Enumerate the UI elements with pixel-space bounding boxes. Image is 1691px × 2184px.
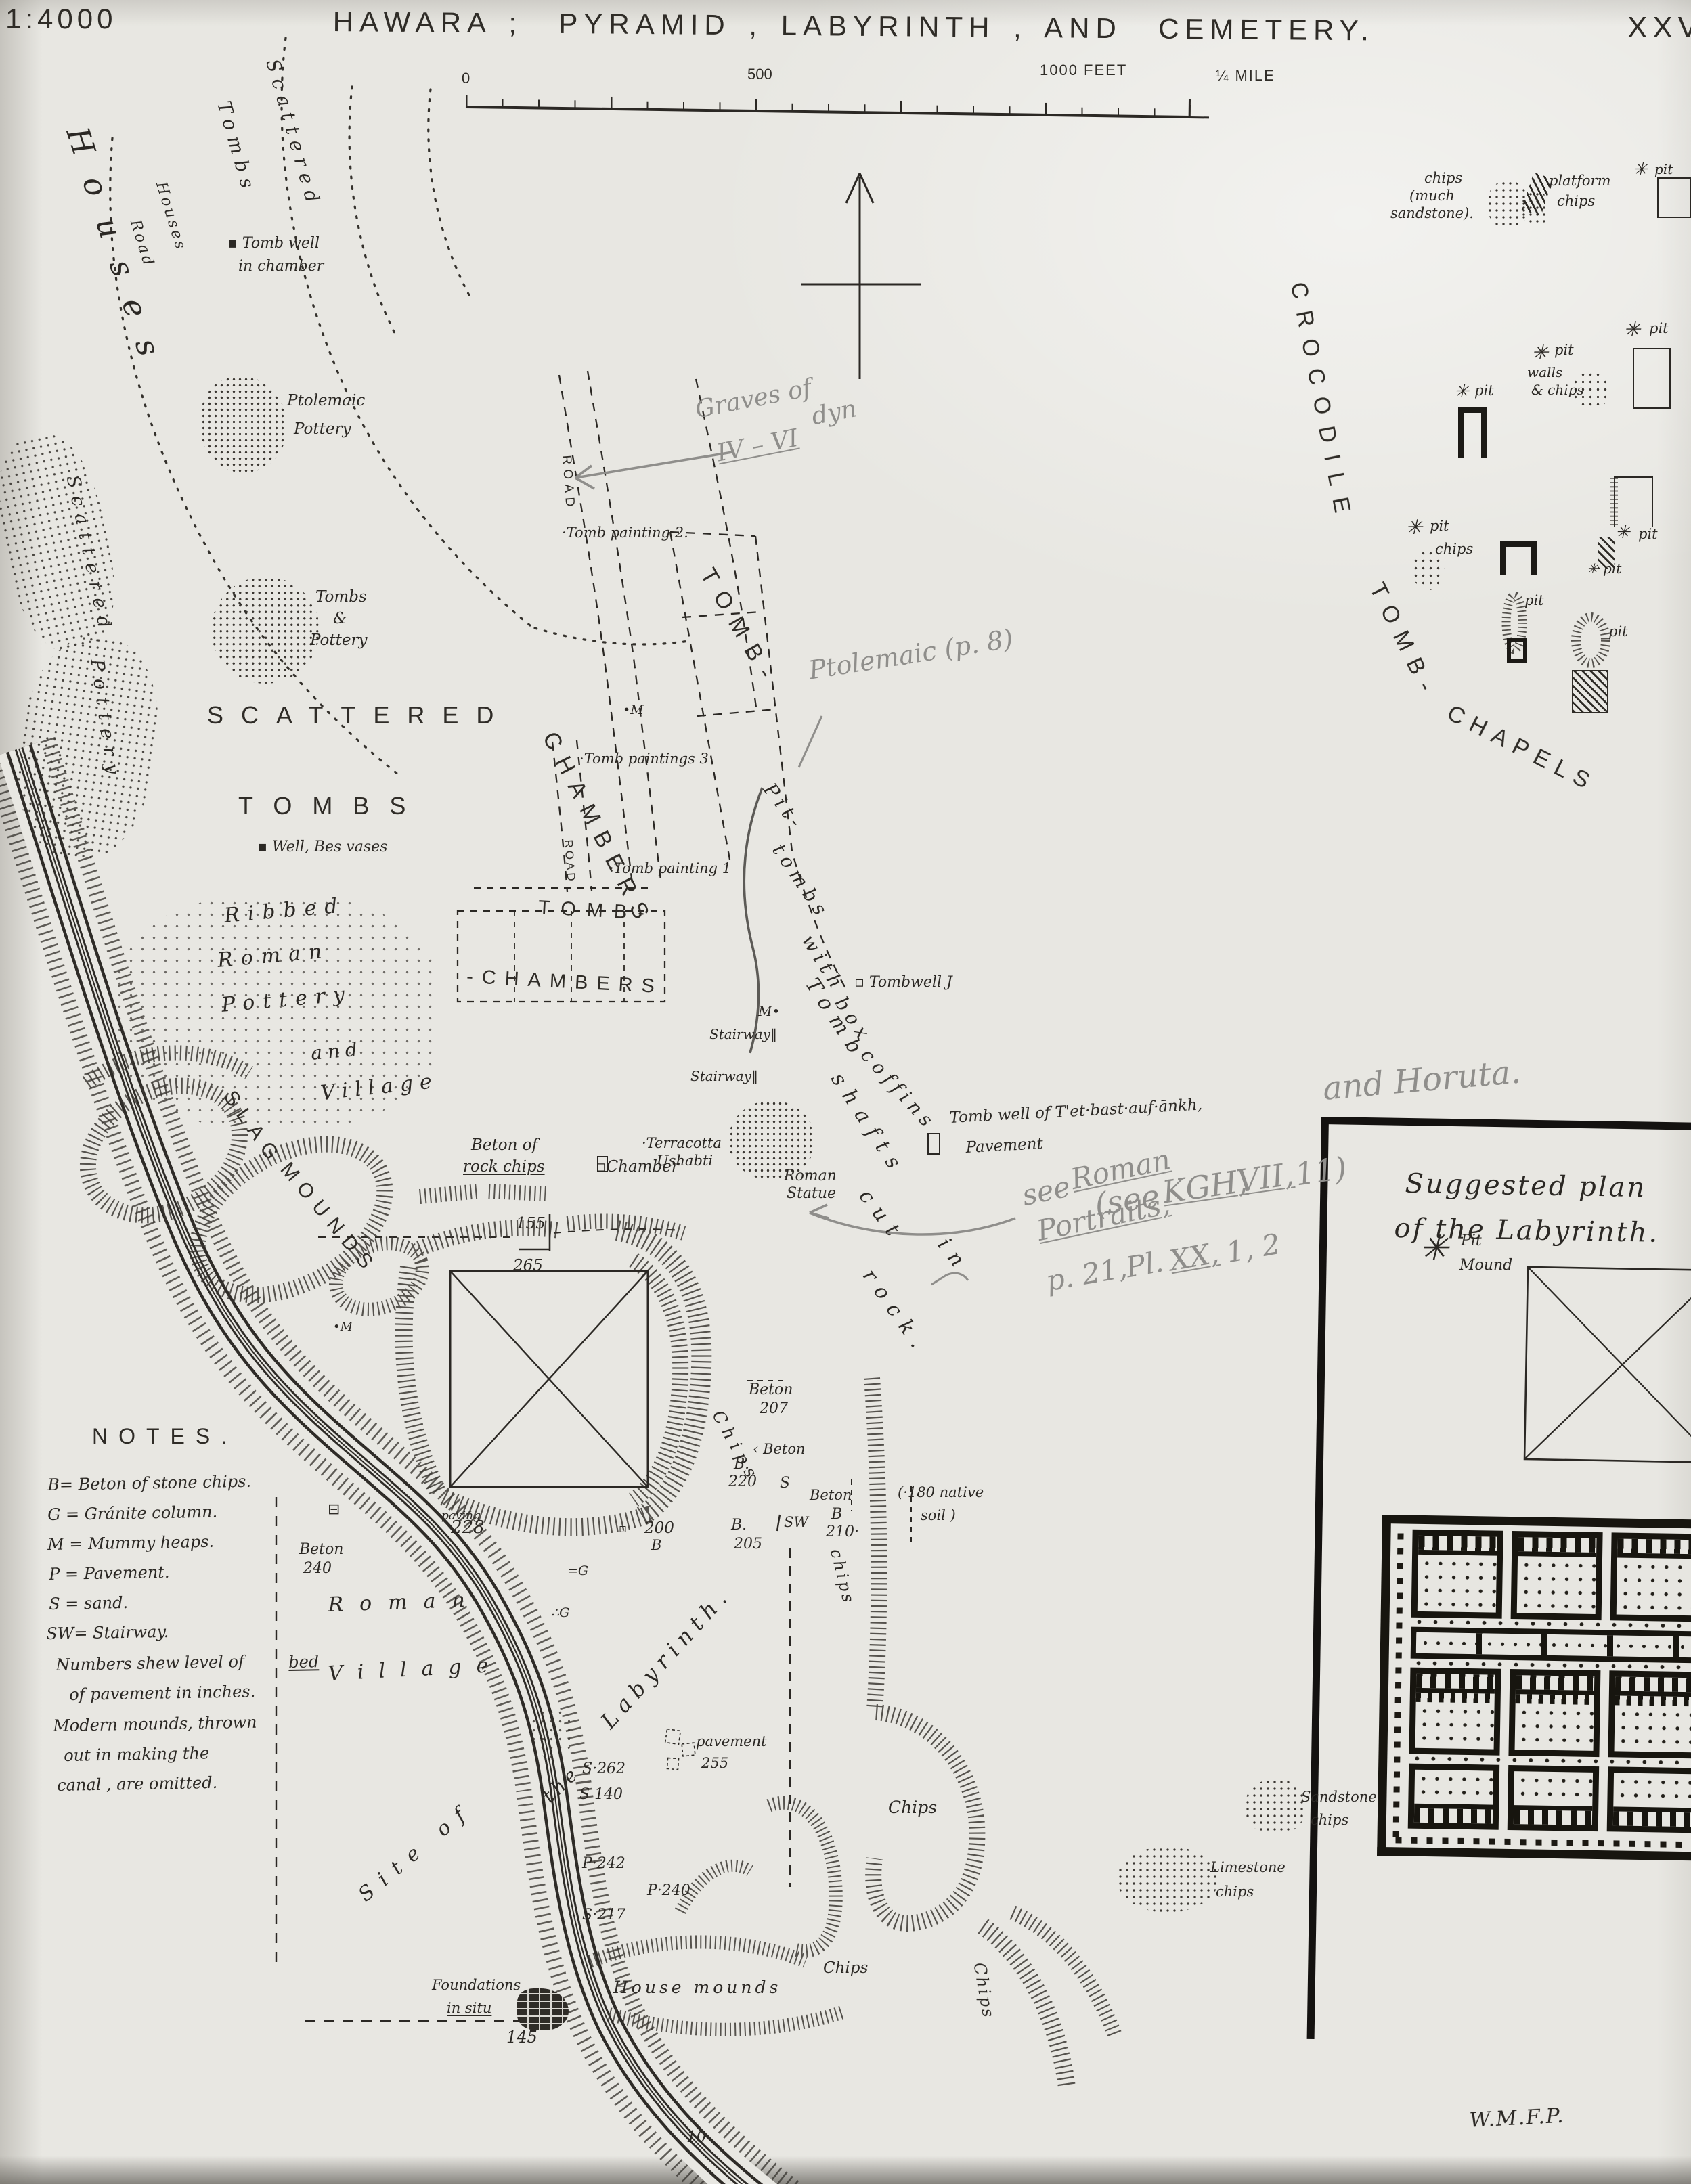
pit-star-icon-7: ✳ xyxy=(1587,562,1598,576)
marker-s: S xyxy=(780,1475,790,1491)
label-beton-207a: Beton xyxy=(749,1382,793,1398)
scale-bar-end-foot xyxy=(1189,116,1209,118)
inset-title-2: of the Labyrinth. xyxy=(1394,1214,1659,1247)
scalebar-quartermile: ¼ MILE xyxy=(1216,68,1275,83)
level-255: 255 xyxy=(701,1756,728,1770)
labyrinth-row-4 xyxy=(1408,1764,1691,1833)
labyrinth-house xyxy=(1411,1530,1503,1619)
label-platform-2: chips xyxy=(1557,194,1595,208)
notes-numbers-1: Numbers shew level of xyxy=(56,1653,244,1674)
label-pit-9: pit xyxy=(1608,624,1628,639)
scale-ratio: 1:4000 xyxy=(5,4,116,34)
label-tomb-painting-1: ·Tomb painting 1 xyxy=(609,861,731,876)
label-tomb-well-1: ▪ Tomb well xyxy=(227,236,320,251)
labyrinth-house xyxy=(1408,1764,1499,1830)
marker-m-2: M• xyxy=(758,1004,780,1019)
chapel-structure-1 xyxy=(1458,407,1487,458)
labyrinth-house xyxy=(1508,1765,1599,1831)
label-pavement-tetbast: Pavement xyxy=(965,1136,1043,1156)
label-chips-sandstone-3: sandstone). xyxy=(1390,206,1474,221)
labyrinth-house xyxy=(1607,1766,1691,1833)
labyrinth-house xyxy=(1608,1671,1691,1759)
pyramid-plan xyxy=(450,1214,648,1487)
notes-line-p: P = Pavement. xyxy=(49,1564,170,1583)
labyrinth-plan-inner xyxy=(1408,1530,1691,1833)
scalebar-1000: 1000 FEET xyxy=(1040,62,1127,78)
notes-line-b: B= Beton of stone chips. xyxy=(47,1473,251,1494)
labyrinth-house xyxy=(1610,1532,1691,1622)
pit-star-icon-4: ✳ xyxy=(1454,383,1469,401)
label-pit-mound-2: Mound xyxy=(1459,1257,1512,1273)
label-pit-walls-1: walls xyxy=(1527,365,1562,380)
notes-line-sw: SW= Stairway. xyxy=(46,1624,169,1643)
label-tombs-pottery-1: Tombs xyxy=(315,589,367,605)
notes-line-g: G = Gránite column. xyxy=(47,1504,217,1524)
stipple-granite-dots xyxy=(529,1708,574,1758)
level-220: 220 xyxy=(728,1474,757,1490)
labyrinth-row-1 xyxy=(1411,1530,1691,1622)
level-207: 207 xyxy=(760,1401,788,1417)
notes-modern-2: out in making the xyxy=(64,1745,209,1764)
level-p240: P·240 xyxy=(647,1883,690,1898)
label-beton-rock-2: rock chips xyxy=(463,1159,545,1175)
label-stairway-2: Stairway‖ xyxy=(690,1069,758,1084)
level-200-b: B xyxy=(651,1538,661,1553)
marker-m-1: •M xyxy=(623,704,644,717)
label-pit-chips: chips xyxy=(1435,541,1473,556)
labyrinth-dotted-row xyxy=(1395,1837,1691,1848)
level-10: 10 xyxy=(686,2129,706,2145)
level-210-b: B xyxy=(831,1507,842,1522)
label-tomb-painting-2: ·Tomb painting 2. xyxy=(562,525,688,540)
notes-modern-1: Modern mounds, thrown xyxy=(53,1714,257,1735)
level-265: 265 xyxy=(513,1257,543,1274)
marker-g-200: ▫ xyxy=(619,1523,627,1536)
label-pit-6: pit xyxy=(1638,527,1658,541)
level-220-b: B. xyxy=(734,1456,749,1472)
pit-star-icon-5: ✳ xyxy=(1405,517,1422,539)
label-ptolemaic-pottery-2: Pottery xyxy=(294,421,351,437)
label-pit-walls-2: & chips xyxy=(1531,383,1584,397)
label-roman-village-1: Roman xyxy=(328,1589,481,1615)
label-limestone-1: Limestone xyxy=(1210,1860,1286,1875)
level-200: 200 xyxy=(644,1520,674,1536)
level-240: 240 xyxy=(303,1561,332,1576)
level-p242: P·242 xyxy=(582,1856,625,1871)
label-tomb-paintings-3: ·Tomb paintings 3 xyxy=(579,751,709,766)
pencil-see-kgh-4: 11) xyxy=(1293,1151,1348,1190)
label-roman-statue-2: Statue xyxy=(787,1186,836,1201)
label-ptolemaic-pottery-1: Ptolemaic xyxy=(287,393,365,409)
label-roman-statue-1: Roman xyxy=(784,1168,837,1184)
label-native-soil-2: soil ) xyxy=(921,1508,956,1523)
inset-title-1: Suggested plan xyxy=(1405,1169,1646,1202)
label-tombwell-j: ▫ Tombwell J xyxy=(854,975,952,990)
level-s217: S·217 xyxy=(582,1907,625,1923)
label-limestone-2: chips xyxy=(1216,1884,1254,1899)
chapel-rect-1 xyxy=(1633,348,1671,409)
chapel-rect-2 xyxy=(1657,177,1691,218)
pavement-dashed-squares xyxy=(665,1729,695,1770)
label-tombs-pottery-3: Pottery xyxy=(310,632,367,648)
label-road-2: ROAD xyxy=(562,839,577,884)
plate-number: XXV xyxy=(1627,12,1691,43)
label-pit-8: pit xyxy=(1524,593,1544,608)
hatched-pit-large xyxy=(1572,670,1608,713)
notes-numbers-2: of pavement in inches. xyxy=(69,1683,255,1703)
notes-modern-3: canal , are omitted. xyxy=(57,1775,217,1794)
labyrinth-row-2 xyxy=(1411,1626,1691,1663)
labyrinth-dotted-column xyxy=(1393,1533,1404,1837)
labyrinth-house xyxy=(1508,1669,1600,1757)
pit-star-icon-1: ✳ xyxy=(1633,161,1648,179)
stipple-tombs-pottery xyxy=(211,577,320,684)
label-ribbed-4: and xyxy=(310,1039,364,1063)
scalebar-500: 500 xyxy=(747,66,772,82)
stipple-sandstone-chips xyxy=(1244,1779,1306,1835)
level-s140: S 140 xyxy=(579,1787,623,1802)
label-tombs-pottery-2: & xyxy=(333,610,347,627)
label-sandstone-2: chips xyxy=(1311,1812,1348,1827)
level-210: 210· xyxy=(826,1524,859,1540)
marker-bed-symbol: ⊟ xyxy=(328,1501,340,1517)
label-beton-240a: Beton xyxy=(299,1542,343,1557)
notes-heading: NOTES. xyxy=(92,1425,238,1448)
chapel-rect-3 xyxy=(1614,476,1653,527)
label-pit-1: pit xyxy=(1654,162,1673,177)
scalebar-0: 0 xyxy=(462,70,470,86)
north-arrow-icon xyxy=(801,173,921,379)
notes-line-m: M = Mummy heaps. xyxy=(47,1534,214,1553)
label-pit-4: pit xyxy=(1474,383,1494,398)
label-platform-1: platform xyxy=(1549,173,1611,188)
labyrinth-plan xyxy=(1377,1515,1691,1861)
stipple-limestone-chips xyxy=(1117,1846,1218,1913)
label-pit-3: pit xyxy=(1649,321,1669,336)
label-beton-right: Beton xyxy=(810,1488,852,1502)
marker-g-1: =G xyxy=(567,1565,588,1578)
level-s262: S·262 xyxy=(582,1761,625,1777)
label-pit-5: pit xyxy=(1430,518,1449,533)
notes-line-s: S = sand. xyxy=(49,1595,128,1613)
map-plate-hawara: 1:4000HAWARA ; PYRAMID , LABYRINTH , AND… xyxy=(0,0,1691,2184)
label-sandstone-1: Sandstone xyxy=(1301,1789,1377,1804)
label-chips-3: Chips xyxy=(823,1960,868,1976)
signature-wmfp: W.M.F.P. xyxy=(1469,2105,1565,2132)
labyrinth-house xyxy=(1511,1531,1603,1620)
marker-sw: SW xyxy=(784,1515,808,1530)
tomb-well-symbol xyxy=(927,1133,940,1155)
label-well-bes-vases: ▪ Well, Bes vases xyxy=(257,839,387,855)
label-foundations-1: Foundations xyxy=(432,1978,521,1992)
pit-star-icon-2: ✳ xyxy=(1531,342,1548,364)
label-scattered-tombs-1: SCATTERED xyxy=(207,703,511,728)
notes-numbers-bed: bed xyxy=(288,1653,319,1671)
label-beton-arrow: ‹ Beton xyxy=(753,1442,806,1456)
level-145: 145 xyxy=(506,2029,537,2046)
label-chips-sandstone-1: chips xyxy=(1424,171,1462,185)
pit-star-icon-6: ✳ xyxy=(1615,524,1630,542)
label-native-soil-1: (·180 native xyxy=(898,1485,984,1500)
label-pit-7: pit xyxy=(1603,562,1621,576)
labyrinth-row-3 xyxy=(1409,1668,1691,1759)
label-scattered-tombs-2: TOMBS xyxy=(238,793,426,819)
level-155: 155 xyxy=(516,1216,546,1232)
label-pit-2: pit xyxy=(1554,342,1574,357)
label-chamber: ▫Chamber xyxy=(596,1159,679,1175)
stipple-ptolemaic-pottery xyxy=(200,376,287,472)
marker-g-2: ∴G xyxy=(551,1607,569,1620)
label-pavement-255a: pavement xyxy=(696,1734,767,1749)
labyrinth-house xyxy=(1409,1668,1501,1756)
label-chips-2: Chips xyxy=(888,1799,937,1817)
label-foundations-2: in situ xyxy=(447,2001,491,2015)
level-228: 228 xyxy=(451,1519,485,1537)
chapel-cell xyxy=(1507,638,1527,663)
level-205-b: B. xyxy=(731,1517,747,1533)
label-stairway-1: Stairway‖ xyxy=(709,1027,777,1042)
level-205: 205 xyxy=(734,1536,762,1552)
label-house-mounds: House mounds xyxy=(613,1979,781,1997)
label-tomb-well-2: in chamber xyxy=(238,259,324,274)
pencil-see-kgh-3: VII, xyxy=(1235,1157,1296,1198)
label-road-1: ROAD xyxy=(559,455,577,512)
marker-m-3: •M xyxy=(333,1321,353,1334)
pencil-see-roman-5: Pl. xyxy=(1124,1247,1166,1283)
pit-star-icon-3: ✳ xyxy=(1623,319,1640,341)
label-beton-rock-1: Beton of xyxy=(471,1137,537,1153)
scale-bar-end-tick xyxy=(1189,99,1191,118)
label-chips-sandstone-2: (much xyxy=(1409,188,1455,203)
label-terracotta-1: ·Terracotta xyxy=(642,1136,722,1151)
chapel-structure-2 xyxy=(1500,541,1537,575)
